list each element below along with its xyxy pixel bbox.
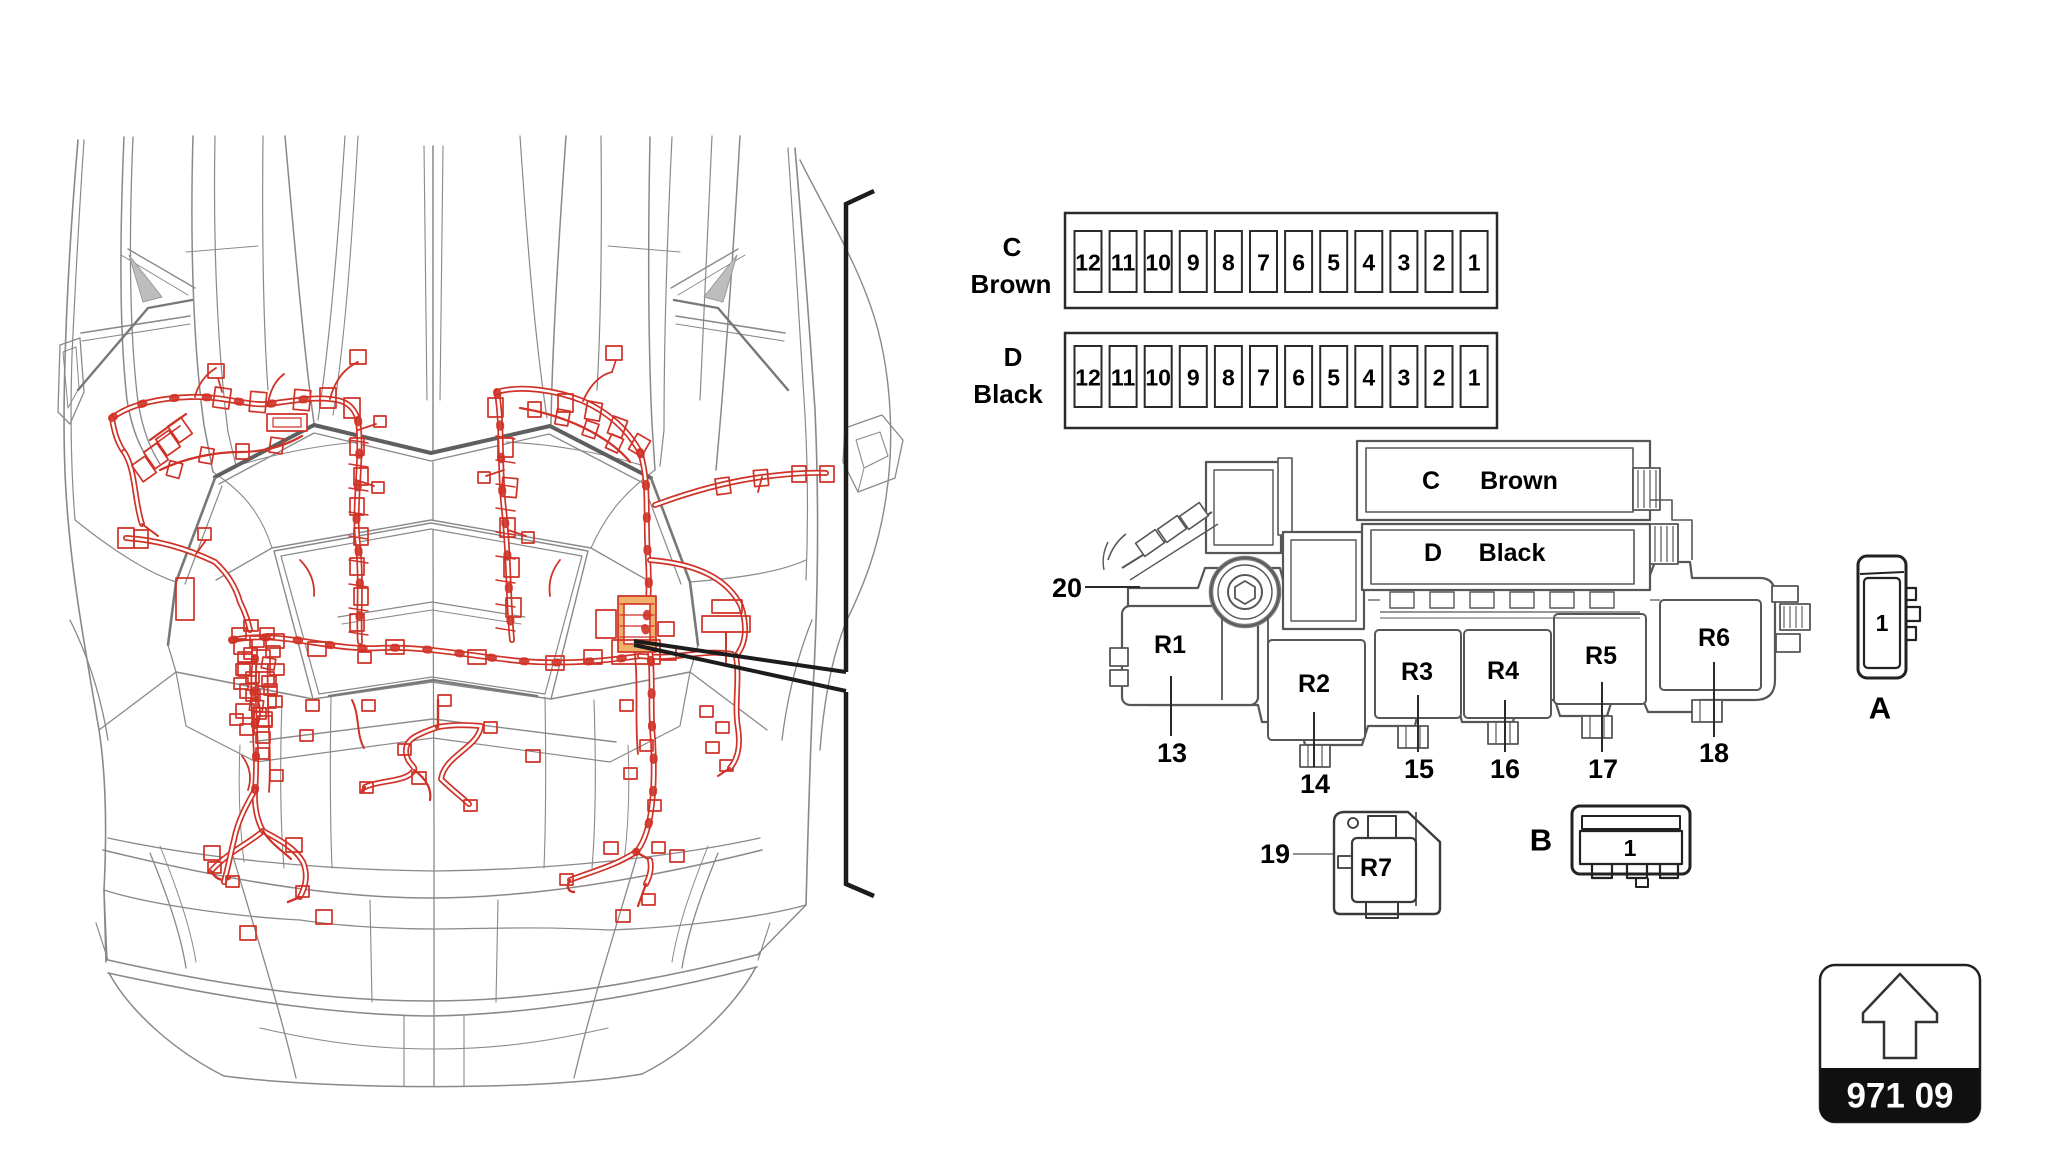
svg-text:18: 18 — [1699, 738, 1729, 768]
svg-text:D: D — [1424, 539, 1442, 567]
svg-text:B: B — [1530, 823, 1552, 858]
svg-text:A: A — [1869, 691, 1891, 726]
svg-text:11: 11 — [1111, 365, 1136, 391]
svg-text:Brown: Brown — [971, 269, 1052, 299]
svg-text:7: 7 — [1257, 365, 1270, 391]
svg-text:10: 10 — [1145, 365, 1171, 391]
svg-text:19: 19 — [1260, 839, 1290, 869]
svg-text:Black: Black — [1479, 539, 1546, 567]
svg-text:6: 6 — [1292, 365, 1305, 391]
svg-text:2: 2 — [1433, 250, 1446, 276]
svg-text:11: 11 — [1111, 250, 1136, 276]
svg-text:C: C — [1003, 232, 1022, 262]
svg-text:C: C — [1422, 467, 1440, 495]
svg-text:R3: R3 — [1401, 658, 1433, 686]
svg-text:20: 20 — [1052, 573, 1082, 603]
svg-text:15: 15 — [1404, 754, 1434, 784]
svg-text:8: 8 — [1222, 365, 1235, 391]
svg-text:Brown: Brown — [1480, 467, 1558, 495]
svg-text:R1: R1 — [1154, 631, 1186, 659]
svg-text:3: 3 — [1398, 250, 1411, 276]
svg-text:17: 17 — [1588, 754, 1618, 784]
svg-text:1: 1 — [1876, 610, 1889, 636]
svg-text:R7: R7 — [1360, 854, 1392, 882]
svg-text:10: 10 — [1145, 250, 1171, 276]
svg-text:R5: R5 — [1585, 642, 1617, 670]
svg-text:5: 5 — [1327, 365, 1340, 391]
svg-text:Black: Black — [973, 379, 1043, 409]
svg-text:5: 5 — [1327, 250, 1340, 276]
svg-text:7: 7 — [1257, 250, 1270, 276]
svg-text:12: 12 — [1075, 365, 1101, 391]
svg-text:971 09: 971 09 — [1846, 1077, 1953, 1116]
svg-text:16: 16 — [1490, 754, 1520, 784]
svg-text:D: D — [1004, 342, 1023, 372]
svg-text:1: 1 — [1468, 365, 1481, 391]
svg-text:1: 1 — [1468, 250, 1481, 276]
svg-text:14: 14 — [1300, 769, 1330, 799]
svg-text:R2: R2 — [1298, 670, 1330, 698]
svg-text:9: 9 — [1187, 365, 1200, 391]
svg-text:4: 4 — [1362, 250, 1375, 276]
svg-text:9: 9 — [1187, 250, 1200, 276]
svg-text:2: 2 — [1433, 365, 1446, 391]
svg-text:1: 1 — [1624, 835, 1637, 861]
svg-text:12: 12 — [1075, 250, 1101, 276]
svg-text:R6: R6 — [1698, 624, 1730, 652]
svg-text:6: 6 — [1292, 250, 1305, 276]
svg-text:4: 4 — [1362, 365, 1375, 391]
svg-text:R4: R4 — [1487, 657, 1519, 685]
svg-text:3: 3 — [1398, 365, 1411, 391]
svg-text:8: 8 — [1222, 250, 1235, 276]
svg-text:13: 13 — [1157, 738, 1187, 768]
